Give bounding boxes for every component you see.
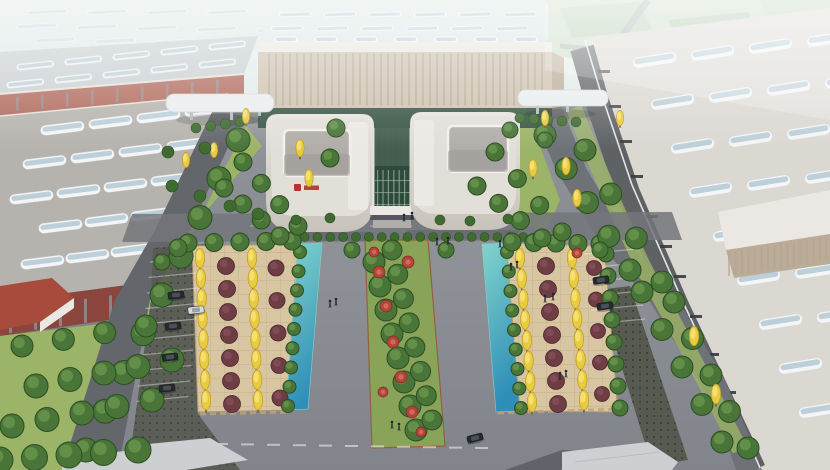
stripe	[748, 249, 750, 273]
person-head	[436, 238, 439, 241]
flower-bed-center	[381, 390, 386, 395]
tree-highlight	[385, 242, 395, 252]
hedge-tree	[403, 233, 412, 242]
hedge-tree	[465, 216, 475, 226]
tree-highlight	[694, 396, 705, 407]
tree-highlight	[634, 283, 645, 294]
tree-highlight	[222, 306, 230, 314]
stripe	[774, 245, 776, 269]
stripe	[388, 170, 389, 208]
tree-highlight	[604, 292, 612, 300]
tree-highlight	[595, 357, 602, 364]
stripe	[741, 250, 743, 274]
tree-highlight	[574, 191, 579, 201]
tree-highlight	[96, 324, 107, 335]
tree-highlight	[220, 260, 228, 268]
tree-highlight	[251, 311, 256, 322]
tree-highlight	[183, 154, 187, 162]
tree-highlight	[402, 315, 412, 325]
tree-highlight	[571, 236, 580, 245]
tree-highlight	[396, 291, 406, 301]
tree-highlight	[614, 402, 622, 410]
tree-highlight	[223, 329, 231, 337]
tree-highlight	[622, 261, 633, 272]
tree-highlight	[654, 321, 665, 332]
tree-highlight	[73, 403, 85, 415]
tree-highlight	[289, 324, 296, 331]
tree-highlight	[593, 325, 600, 332]
tree-highlight	[171, 241, 180, 250]
stripe	[404, 170, 405, 208]
tree-highlight	[714, 433, 725, 444]
left-u-courtyard-shade	[284, 154, 350, 176]
tree-highlight	[518, 270, 523, 281]
tree-highlight	[740, 439, 751, 450]
tree-highlight	[523, 332, 528, 343]
hedge-tree	[435, 215, 445, 225]
hedge-tree	[194, 190, 206, 202]
stripe	[767, 246, 769, 270]
hedge-tree	[326, 233, 335, 242]
tree-highlight	[612, 380, 620, 388]
hedge-tree	[352, 233, 361, 242]
tree-highlight	[288, 343, 295, 350]
tree-highlight	[674, 358, 685, 369]
tree-highlight	[527, 373, 532, 384]
tree-highlight	[513, 364, 520, 371]
tree-highlight	[690, 328, 695, 339]
tree-highlight	[530, 161, 535, 171]
person-head	[516, 261, 519, 264]
tree-highlight	[115, 363, 127, 375]
stripe	[375, 204, 411, 205]
hedge-tree	[313, 233, 322, 242]
tree-highlight	[525, 353, 530, 364]
tree-highlight	[306, 171, 311, 181]
campus-aerial-scene	[0, 0, 830, 470]
stripe	[631, 175, 643, 178]
tree-highlight	[191, 208, 203, 220]
flower-bed-center	[376, 269, 381, 274]
tree-highlight	[572, 290, 577, 301]
tree-highlight	[550, 375, 558, 383]
tree-highlight	[253, 372, 258, 383]
stripe	[735, 251, 737, 275]
stripe	[806, 240, 808, 264]
tree-highlight	[273, 197, 282, 206]
tree-highlight	[323, 151, 332, 160]
tree-highlight	[248, 250, 253, 261]
tree-highlight	[250, 290, 255, 301]
tree-highlight	[384, 325, 395, 336]
tree-highlight	[249, 270, 254, 281]
tree-highlight	[589, 262, 596, 269]
tree-highlight	[59, 445, 72, 458]
tree-highlight	[294, 266, 301, 273]
tree-highlight	[577, 351, 582, 362]
tree-highlight	[591, 294, 598, 301]
flower-bed-center	[383, 303, 388, 308]
tree-highlight	[224, 352, 232, 360]
flower-bed-center	[419, 430, 424, 435]
flower-bed-center	[409, 409, 414, 414]
tree-highlight	[703, 366, 714, 377]
hedge-tree	[325, 213, 335, 223]
hedge-tree	[364, 233, 373, 242]
tree-highlight	[712, 386, 717, 397]
tree-highlight	[197, 270, 202, 281]
tree-highlight	[129, 357, 141, 369]
tree-highlight	[506, 286, 513, 293]
tree-highlight	[128, 440, 141, 453]
tree-highlight	[548, 352, 556, 360]
tree-highlight	[540, 260, 548, 268]
stripe	[399, 170, 400, 208]
stripe	[375, 180, 411, 181]
stripe	[690, 315, 702, 318]
tree-highlight	[601, 227, 612, 238]
person-head	[398, 423, 401, 426]
person-head	[552, 293, 555, 296]
tree-highlight	[253, 351, 258, 362]
tree-highlight	[225, 375, 233, 383]
tree-highlight	[38, 410, 50, 422]
tree-highlight	[419, 388, 429, 398]
tree-highlight	[520, 291, 525, 302]
hedge-tree	[291, 215, 301, 225]
person-head	[559, 372, 562, 375]
person-head	[510, 263, 513, 266]
tree-highlight	[597, 388, 604, 395]
tree-highlight	[575, 331, 580, 342]
tree-highlight	[202, 392, 207, 403]
tree-highlight	[570, 270, 575, 281]
tree-highlight	[221, 283, 229, 291]
tree-highlight	[533, 198, 542, 207]
person-head	[565, 370, 568, 373]
tree-highlight	[407, 339, 417, 349]
tree-highlight	[14, 337, 25, 348]
tree-highlight	[138, 317, 149, 328]
person-head	[391, 421, 394, 424]
hedge-tree	[339, 233, 348, 242]
stripe	[787, 243, 789, 267]
stripe	[674, 275, 686, 278]
hedge-tree	[224, 200, 236, 212]
stripe	[393, 170, 394, 208]
stripe	[375, 192, 411, 193]
tree-highlight	[273, 229, 282, 238]
tree-highlight	[291, 305, 298, 312]
tree-highlight	[542, 283, 550, 291]
tree-highlight	[509, 325, 516, 332]
stripe	[826, 237, 828, 261]
tree-highlight	[563, 159, 568, 169]
stripe	[84, 299, 87, 323]
tree-highlight	[108, 397, 120, 409]
car-cabin	[166, 354, 174, 359]
car-cabin	[172, 292, 180, 297]
tree-highlight	[292, 285, 299, 292]
logo-emblem	[294, 184, 301, 191]
tree-highlight	[372, 277, 383, 288]
person-head	[544, 295, 547, 298]
person-head	[403, 214, 406, 217]
tree-highlight	[283, 401, 290, 408]
tree-highlight	[271, 295, 278, 302]
tree-highlight	[273, 360, 280, 367]
tree-highlight	[514, 383, 521, 390]
tree-highlight	[196, 250, 201, 261]
tree-highlight	[217, 181, 226, 190]
tree-highlight	[610, 358, 618, 366]
person-head	[499, 240, 502, 243]
tree-highlight	[255, 176, 264, 185]
tree-highlight	[544, 306, 552, 314]
tree-highlight	[552, 398, 560, 406]
tree-highlight	[514, 213, 523, 222]
tree-highlight	[285, 382, 292, 389]
tree-highlight	[516, 403, 523, 410]
tree-highlight	[236, 197, 245, 206]
car-cabin	[192, 307, 200, 312]
tree-highlight	[470, 179, 479, 188]
tree-highlight	[143, 390, 155, 402]
stripe	[800, 241, 802, 265]
tree-highlight	[226, 398, 234, 406]
tree-highlight	[270, 262, 277, 269]
hedge-tree	[377, 233, 386, 242]
tree-highlight	[528, 394, 533, 405]
tree-highlight	[236, 155, 245, 164]
stripe	[382, 170, 383, 208]
hedge-tree	[416, 233, 425, 242]
tree-highlight	[594, 244, 602, 252]
tree-highlight	[55, 331, 66, 342]
stripe	[819, 238, 821, 262]
person-head	[411, 212, 414, 215]
hedge-tree	[454, 233, 463, 242]
tree-highlight	[27, 376, 39, 388]
canopy-shadow	[370, 215, 414, 220]
tree-highlight	[608, 336, 616, 344]
tree-highlight	[25, 447, 38, 460]
tree-highlight	[555, 225, 564, 234]
hedge-tree	[480, 233, 489, 242]
tree-highlight	[440, 244, 448, 252]
tree-highlight	[272, 327, 279, 334]
tree-highlight	[535, 231, 544, 240]
tree-highlight	[201, 351, 206, 362]
tree-highlight	[721, 403, 732, 414]
stripe	[813, 239, 815, 263]
tree-highlight	[521, 312, 526, 323]
tree-highlight	[516, 250, 521, 261]
tree-highlight	[425, 412, 435, 422]
tree-highlight	[390, 266, 400, 276]
tree-highlight	[413, 363, 423, 373]
tree-highlight	[286, 362, 293, 369]
car-cabin	[169, 323, 177, 328]
hedge-tree	[503, 214, 513, 224]
person-head	[447, 237, 450, 240]
tree-highlight	[274, 392, 281, 399]
person-head	[335, 298, 338, 301]
hedge-tree	[252, 208, 264, 220]
flower-bed-center	[405, 259, 410, 264]
tree-highlight	[94, 442, 107, 455]
tree-highlight	[153, 285, 165, 297]
stripe	[761, 247, 763, 271]
tree-highlight	[156, 256, 164, 264]
stripe	[793, 242, 795, 266]
tree-highlight	[666, 293, 677, 304]
flower-bed-center	[372, 250, 377, 255]
tree-highlight	[505, 235, 514, 244]
tree-highlight	[580, 392, 585, 403]
tree-highlight	[201, 372, 206, 383]
flower-bed-center	[398, 374, 403, 379]
tree-highlight	[3, 416, 15, 428]
stripe	[754, 248, 756, 272]
logo-wordmark	[304, 186, 319, 191]
flower-bed-center	[575, 251, 580, 256]
hedge-tree	[467, 233, 476, 242]
tree-highlight	[254, 392, 259, 403]
tree-highlight	[654, 273, 665, 284]
tree-highlight	[207, 235, 216, 244]
tree-highlight	[546, 329, 554, 337]
tree-highlight	[511, 171, 520, 180]
tree-highlight	[579, 372, 584, 383]
hedge-tree	[166, 180, 178, 192]
tree-highlight	[507, 305, 514, 312]
stripe	[660, 245, 672, 248]
entrance-canopy	[370, 206, 414, 215]
tree-highlight	[61, 370, 73, 382]
car-cabin	[163, 385, 171, 390]
hedge-tree	[442, 233, 451, 242]
tree-highlight	[628, 229, 639, 240]
tree-highlight	[346, 244, 354, 252]
tree-highlight	[252, 331, 257, 342]
tree-highlight	[492, 196, 501, 205]
hedge-tree	[429, 233, 438, 242]
rendering-canvas	[0, 0, 830, 470]
tree-highlight	[602, 185, 613, 196]
tree-highlight	[573, 311, 578, 322]
flower-bed-center	[390, 339, 395, 344]
tree-highlight	[390, 349, 401, 360]
tree-highlight	[95, 363, 107, 375]
tree-highlight	[259, 234, 268, 243]
person-head	[329, 300, 332, 303]
stripe	[377, 170, 378, 208]
stripe	[780, 244, 782, 268]
tree-highlight	[198, 290, 203, 301]
tree-highlight	[606, 314, 614, 322]
tree-highlight	[511, 344, 518, 351]
stripe	[728, 252, 730, 276]
tree-highlight	[200, 331, 205, 342]
tree-highlight	[233, 235, 242, 244]
